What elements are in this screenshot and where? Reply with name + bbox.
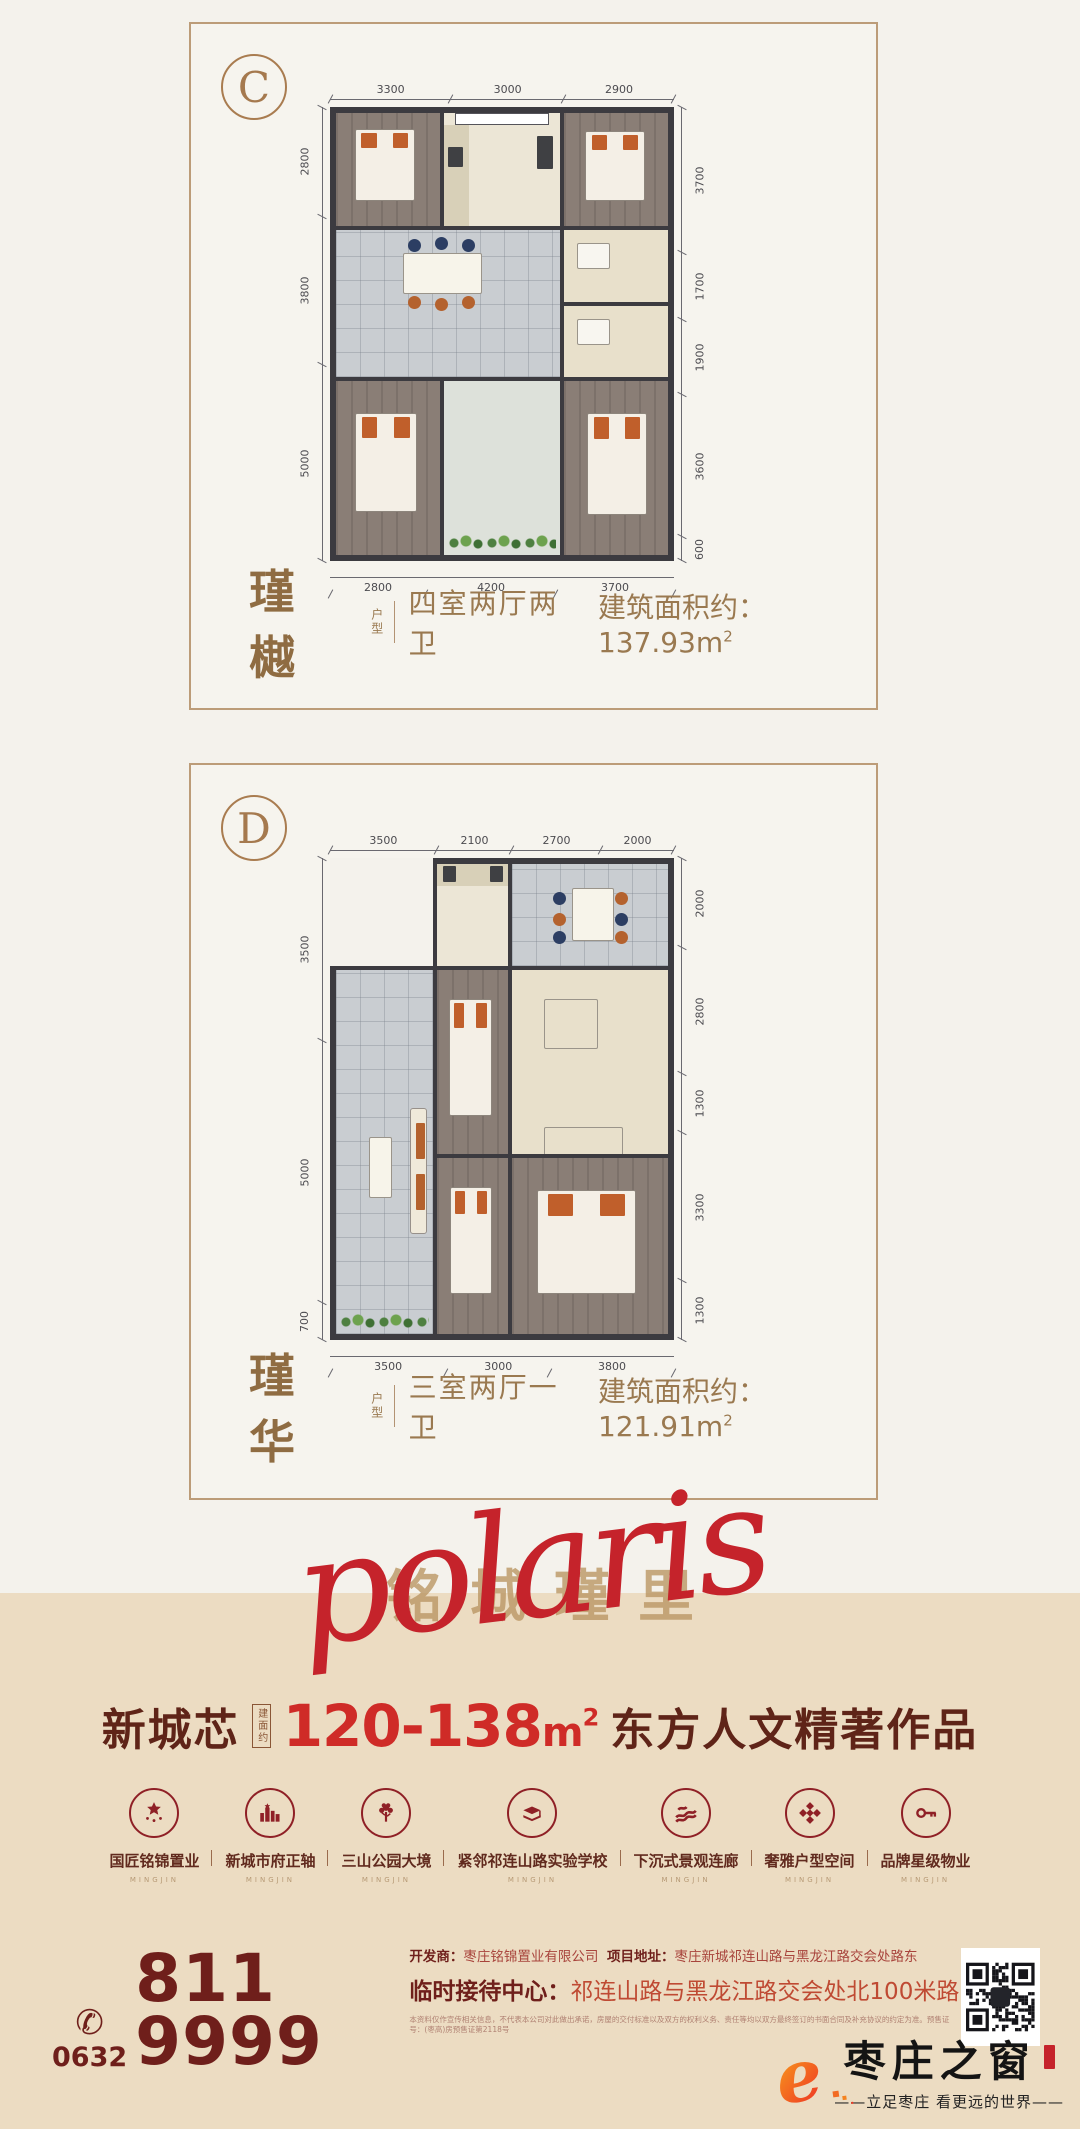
features-row: 国匠铭锦置业 MINGJIN 新城市府正轴 MINGJIN 三山公园大境 MIN… <box>0 1788 1080 1884</box>
tree-icon <box>361 1788 411 1838</box>
area-code: 0632 <box>52 2042 127 2073</box>
dimension-label: 5000 <box>287 365 323 561</box>
headline-seal: 建面约 <box>252 1704 271 1748</box>
e-swirl-logo-icon: e <box>772 2037 827 2115</box>
plan-tag-d: D <box>221 795 287 861</box>
red-seal-icon <box>1044 2045 1055 2069</box>
plan-name-suffix: 户型 <box>369 1392 386 1420</box>
dimension-label: 2800 <box>681 948 717 1074</box>
dimension-label: 2100 <box>437 834 512 851</box>
feature-subtext: MINGJIN <box>362 1876 411 1884</box>
bedroom-west <box>437 970 508 1155</box>
media-name: 枣庄之窗 <box>844 2041 1036 2083</box>
plan-layout-desc: 三室两厅一卫 <box>409 1366 574 1446</box>
dimensions-top: 3500210027002000 <box>330 825 674 851</box>
dimensions-right: 3700170019003600600 <box>681 107 717 561</box>
feature-sunken-corridor: 下沉式景观连廊 MINGJIN <box>621 1788 752 1884</box>
dimension-label: 2000 <box>681 858 717 948</box>
dimension-label: 3600 <box>681 395 717 537</box>
qr-code <box>961 1948 1040 2046</box>
reception-center-line: 临时接待中心：祁连山路与黑龙江路交会处北100米路东 <box>409 1972 961 2006</box>
caption-divider <box>394 601 395 643</box>
disclaimer: 本资料仅作宣传相关信息，不代表本公司对此做出承诺，房屋的交付标准以及双方的权利义… <box>409 2015 961 2036</box>
plan-name-suffix: 户型 <box>369 608 386 636</box>
feature-subtext: MINGJIN <box>661 1876 710 1884</box>
dimension-label: 2000 <box>601 834 674 851</box>
feature-city-axis: 新城市府正轴 MINGJIN <box>212 1788 328 1884</box>
poster: C 330030002900 280038005000 <box>0 0 1080 2129</box>
living-room <box>336 970 433 1334</box>
dimension-label: 3500 <box>330 834 437 851</box>
feature-subtext: MINGJIN <box>246 1876 295 1884</box>
dimension-label: 5000 <box>287 1041 323 1303</box>
feature-subtext: MINGJIN <box>901 1876 950 1884</box>
feature-label: 国匠铭锦置业 <box>109 1850 199 1871</box>
feature-park: 三山公园大境 MINGJIN <box>328 1788 444 1884</box>
project-info: 开发商：枣庄铭锦置业有限公司 项目地址：枣庄新城祁连山路与黑龙江路交会处路东 临… <box>409 1948 961 2036</box>
plan-area: 建筑面积约：121.91m2 <box>598 1370 876 1443</box>
feature-label: 品牌星级物业 <box>881 1850 971 1871</box>
floorplan-drawing-c <box>330 107 674 561</box>
dimension-label: 700 <box>287 1303 323 1340</box>
bedroom-northeast <box>564 113 668 226</box>
feature-craft: 国匠铭锦置业 MINGJIN <box>96 1788 212 1884</box>
dimensions-left: 35005000700 <box>287 858 323 1340</box>
master-bedroom <box>564 381 668 555</box>
phone-block: ✆ 0632 811 9999 <box>52 1948 391 2073</box>
headline-area-range: 120-138m2 <box>283 1692 599 1760</box>
floorplan-drawing-d <box>330 858 674 1340</box>
dimension-label: 1700 <box>681 253 717 320</box>
window-strip <box>455 113 548 125</box>
dining-room <box>512 864 668 966</box>
headline-prefix: 新城芯 <box>102 1694 240 1758</box>
plan-name: 瑾 华 <box>249 1340 365 1472</box>
phone-number: 811 9999 <box>135 1948 391 2073</box>
living-dining-room <box>336 230 560 378</box>
feature-subtext: MINGJIN <box>508 1876 557 1884</box>
bedroom-southwest <box>437 1158 508 1334</box>
dimension-label: 3300 <box>681 1133 717 1282</box>
city-buildings-icon <box>245 1788 295 1838</box>
kitchen <box>437 864 508 966</box>
books-icon <box>507 1788 557 1838</box>
dimension-label: 3300 <box>330 83 451 100</box>
dimension-label: 1300 <box>681 1074 717 1133</box>
exterior-void <box>330 858 433 966</box>
landscape-ribbon-icon <box>661 1788 711 1838</box>
plan-letter: C <box>238 63 270 112</box>
plan-caption-d: 瑾 华 户型 三室两厅一卫 建筑面积约：121.91m2 <box>249 1340 876 1472</box>
floorplan-card-d: D 3500210027002000 35005000700 <box>189 763 878 1500</box>
plan-tag-c: C <box>221 54 287 120</box>
feature-label: 奢雅户型空间 <box>765 1850 855 1871</box>
feature-label: 新城市府正轴 <box>225 1850 315 1871</box>
floorplan-d: 3500210027002000 35005000700 <box>287 825 717 1373</box>
bathrooms <box>564 230 668 378</box>
floorplan-card-c: C 330030002900 280038005000 <box>189 22 878 710</box>
floorplan-c: 330030002900 280038005000 <box>287 74 717 594</box>
feature-label: 紧邻祁连山路实验学校 <box>457 1850 607 1871</box>
dimension-label: 2700 <box>512 834 601 851</box>
caption-divider <box>394 1385 395 1427</box>
kitchen <box>444 113 561 226</box>
bedroom-southwest <box>336 381 440 555</box>
key-icon <box>901 1788 951 1838</box>
dimension-label: 1900 <box>681 320 717 395</box>
developer-address-line: 开发商：枣庄铭锦置业有限公司 项目地址：枣庄新城祁连山路与黑龙江路交会处路东 <box>409 1948 961 1967</box>
bedroom-south <box>512 1158 668 1334</box>
bathroom <box>512 970 668 1155</box>
dimension-label: 2900 <box>564 83 674 100</box>
balcony <box>444 381 561 555</box>
dimension-label: 2800 <box>287 107 323 217</box>
plan-letter: D <box>237 804 271 853</box>
dimensions-right: 20002800130033001300 <box>681 858 717 1340</box>
dimensions-top: 330030002900 <box>330 74 674 100</box>
plan-name: 瑾 樾 <box>249 556 365 688</box>
feature-label: 三山公园大境 <box>341 1850 431 1871</box>
headline: 新城芯 建面约 120-138m2 东方人文精著作品 <box>0 1692 1080 1760</box>
stars-icon <box>129 1788 179 1838</box>
plan-area: 建筑面积约：137.93m2 <box>598 586 876 659</box>
dimension-label: 1300 <box>681 1281 717 1340</box>
feature-subtext: MINGJIN <box>130 1876 179 1884</box>
dimension-label: 3800 <box>287 217 323 366</box>
phone-icon: ✆ <box>75 2006 104 2040</box>
feature-luxury-layout: 奢雅户型空间 MINGJIN <box>752 1788 868 1884</box>
bedroom-northwest <box>336 113 440 226</box>
brand-script-art: 铭城瑾里 polaris <box>0 1498 1080 1688</box>
media-logo: e 枣庄之窗 ——立足枣庄 看更远的世界—— <box>776 2040 1064 2112</box>
plan-layout-desc: 四室两厅两卫 <box>409 582 574 662</box>
dimensions-left: 280038005000 <box>287 107 323 561</box>
dimension-label: 3500 <box>287 858 323 1041</box>
feature-property-service: 品牌星级物业 MINGJIN <box>868 1788 984 1884</box>
feature-school: 紧邻祁连山路实验学校 MINGJIN <box>444 1788 620 1884</box>
feature-label: 下沉式景观连廊 <box>634 1850 739 1871</box>
media-tagline: ——立足枣庄 看更远的世界—— <box>834 2091 1064 2112</box>
dimension-label: 3000 <box>451 83 564 100</box>
dimension-label: 3700 <box>681 107 717 253</box>
headline-suffix: 东方人文精著作品 <box>610 1694 978 1758</box>
plan-caption-c: 瑾 樾 户型 四室两厅两卫 建筑面积约：137.93m2 <box>249 556 876 688</box>
feature-subtext: MINGJIN <box>785 1876 834 1884</box>
lattice-flower-icon <box>785 1788 835 1838</box>
